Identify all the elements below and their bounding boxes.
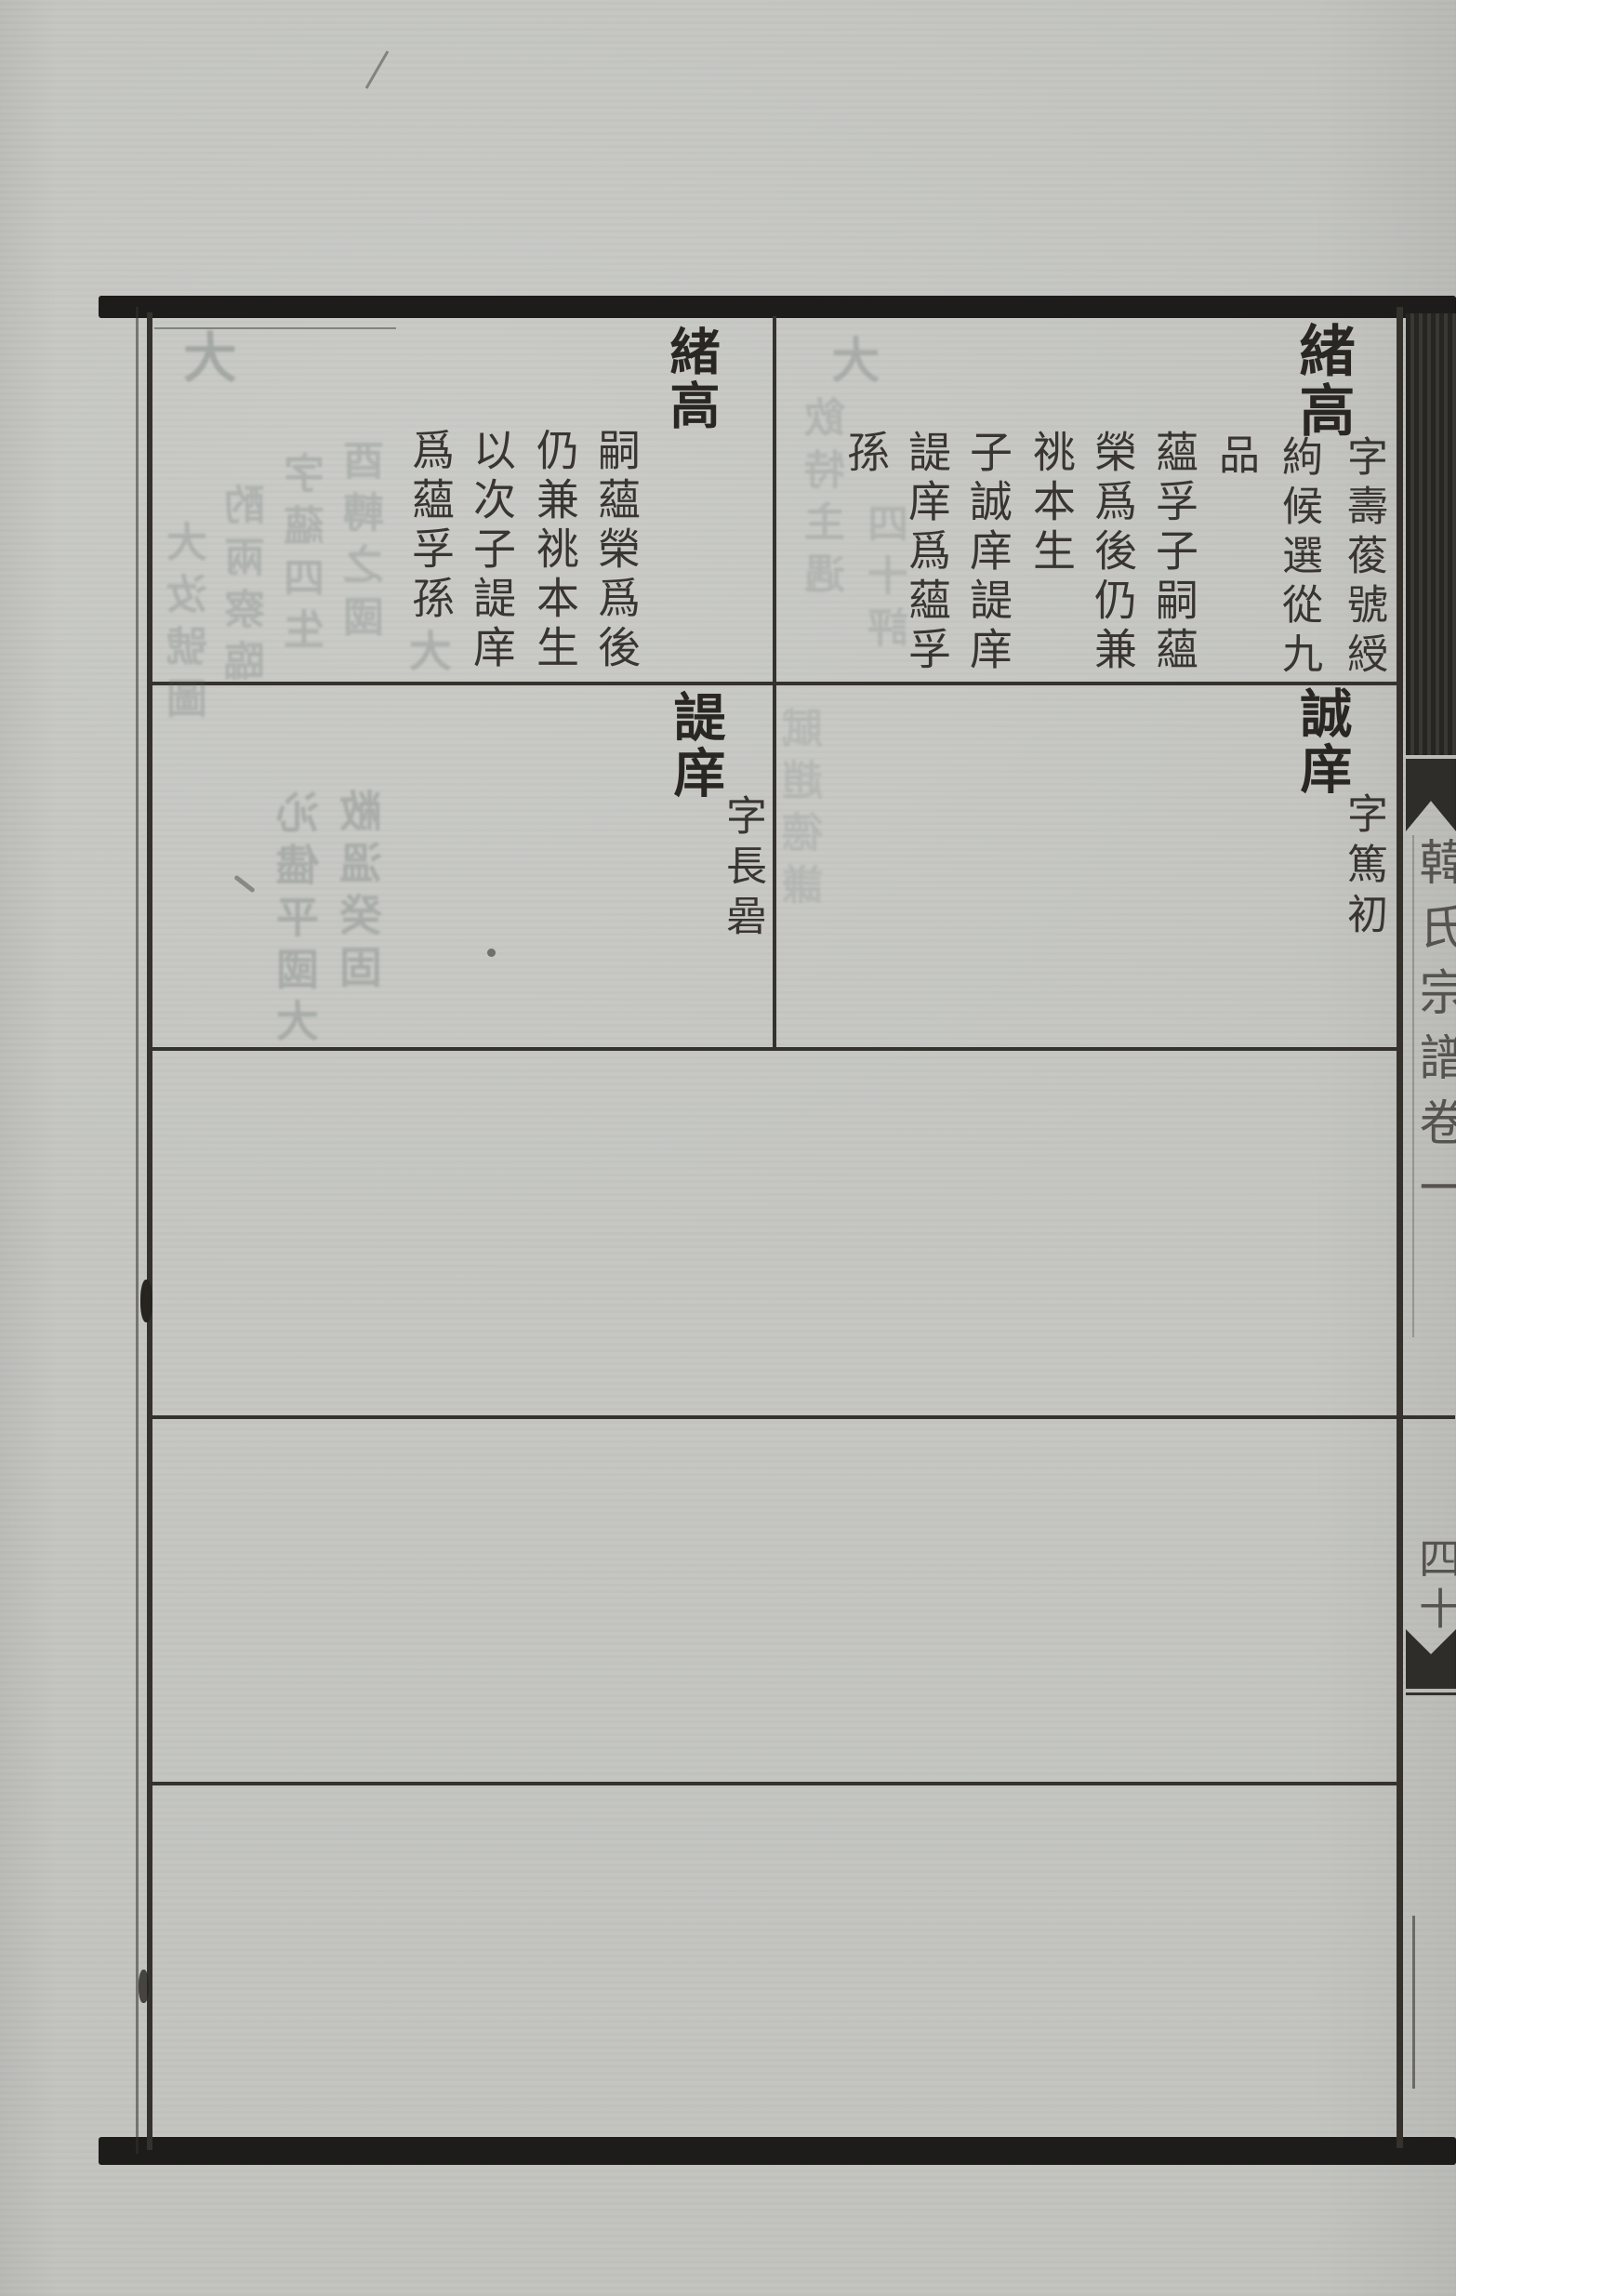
bleedthrough-text: 大汝號圖	[171, 521, 212, 729]
row-line-3	[152, 1415, 1455, 1419]
entry2-body-column: 以次子諟庠	[470, 428, 513, 674]
bleedthrough-text: 沁儘平國大	[279, 790, 322, 1051]
spine-dark-band	[1406, 313, 1456, 755]
ink-blob	[140, 1280, 152, 1322]
spine-page-number: 四十	[1416, 1536, 1456, 1637]
bleedthrough-text: 大	[412, 629, 455, 671]
scanned-page: 緒高 字壽葰號綬 絇候選從九 品 蘊孚子嗣蘊 榮爲後仍兼 祧本生 子誠庠諟庠 諟…	[0, 0, 1602, 2296]
bleedthrough-text: 酌兩察臨	[229, 484, 270, 692]
frame-top-border	[99, 296, 1456, 318]
entry1-body-column: 蘊孚子嗣蘊	[1153, 430, 1196, 676]
spine-center-line-upper	[1412, 835, 1414, 1337]
spine-line	[1406, 1692, 1456, 1695]
ink-blob	[139, 1970, 149, 2003]
frame-right-border	[1397, 307, 1403, 2148]
bleedthrough-text: 酉轉之國	[348, 439, 389, 647]
frame-left-border	[147, 312, 152, 2150]
entry2-body-column: 仍兼祧本生	[534, 428, 576, 674]
entry2-body-column: 嗣蘊榮爲後	[595, 428, 638, 674]
entry1-name: 緒高	[1294, 322, 1350, 441]
entry1-body-column: 祧本生	[1030, 430, 1073, 577]
pen-mark	[233, 875, 256, 894]
bleedthrough-text: 飲特主遇	[809, 396, 850, 604]
frame-left-outer-line	[136, 307, 139, 2154]
entry3-annotation: 字篤初	[1343, 792, 1384, 943]
speck	[487, 949, 496, 957]
entry1-body-column: 子誠庠諟庠	[967, 430, 1010, 676]
entry1-annotation-left: 絇候選從九	[1278, 435, 1318, 682]
bleedthrough-text: 敝溫癸固	[342, 789, 385, 997]
entry2-name: 緒高	[666, 325, 716, 433]
pen-mark	[365, 50, 390, 88]
bleedthrough-text: 四十評	[872, 502, 913, 658]
bleedthrough-text: 大	[188, 329, 242, 383]
frame-bottom-border	[99, 2137, 1456, 2165]
bleedthrough-text: 大	[837, 335, 885, 383]
entry4-name: 諟庠	[669, 690, 722, 802]
entry4-annotation: 字長碞	[722, 794, 762, 945]
spine-center-line-lower	[1412, 1916, 1415, 2089]
bleedthrough-text: 字蘊四生	[288, 452, 329, 660]
cell-divider	[773, 316, 776, 1051]
fishtail-upper	[1406, 759, 1456, 831]
paper-sheet: 緒高 字壽葰號綬 絇候選從九 品 蘊孚子嗣蘊 榮爲後仍兼 祧本生 子誠庠諟庠 諟…	[0, 0, 1456, 2296]
entry1-annotation-cont: 品	[1214, 433, 1255, 483]
fishtail-lower	[1406, 1629, 1456, 1689]
entry3-name: 誠庠	[1296, 686, 1348, 798]
entry2-body-column: 爲蘊孚孫	[409, 428, 452, 625]
entry1-body-column: 榮爲後仍兼	[1092, 430, 1134, 676]
scan-background	[1456, 0, 1602, 2296]
bleedthrough-text: 賦趙德謙	[787, 707, 827, 915]
spine-title: 韓氏宗譜卷一	[1414, 837, 1456, 1228]
entry1-annotation-right: 字壽葰號綬	[1343, 435, 1384, 682]
row-line-4	[152, 1782, 1397, 1785]
